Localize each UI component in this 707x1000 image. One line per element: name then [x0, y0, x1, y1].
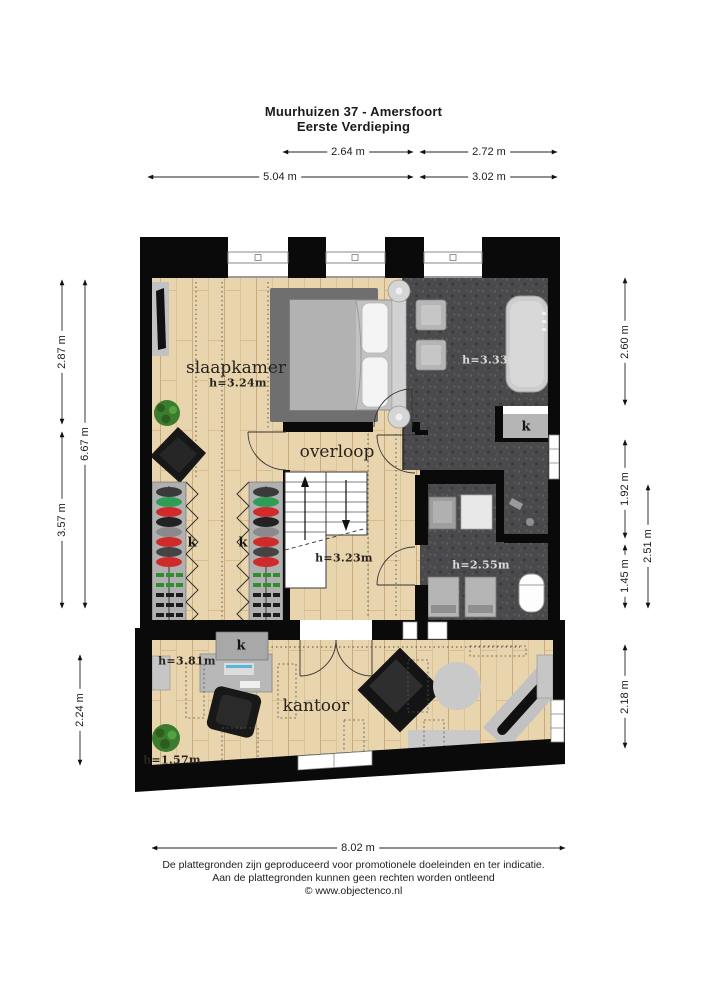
- dimension-label: 2.87 m: [56, 331, 68, 373]
- dimension-label: 2.24 m: [74, 689, 86, 731]
- room-label-overloop: overloop: [300, 442, 375, 462]
- dimension-label: 2.60 m: [619, 321, 631, 363]
- closet-label: k: [236, 639, 245, 654]
- plant-icon: [152, 724, 180, 752]
- dimension-label: 1.45 m: [619, 555, 631, 597]
- closet-label: k: [187, 536, 196, 551]
- dimension-label: 3.57 m: [56, 499, 68, 541]
- toilet-icon: [519, 574, 544, 612]
- dimension-label: 3.02 m: [468, 171, 510, 183]
- dimension-label: 5.04 m: [259, 171, 301, 183]
- ceiling-height-label: h=3.23m: [315, 552, 373, 565]
- footer-copyright: © www.objectenco.nl: [0, 885, 707, 897]
- dimension-label: 2.51 m: [642, 525, 654, 567]
- ceiling-height-label: h=3.24m: [209, 377, 267, 390]
- footer-disclaimer-1: De plattegronden zijn geproduceerd voor …: [0, 859, 707, 871]
- plant-icon: [154, 400, 180, 426]
- round-rug: [433, 662, 481, 710]
- ceiling-height-label: h=1.57m: [143, 754, 201, 767]
- ceiling-height-label: h=2.55m: [452, 559, 510, 572]
- room-label-kantoor: kantoor: [283, 696, 350, 716]
- dimension-label: 2.72 m: [468, 146, 510, 158]
- dimension-label: 2.18 m: [619, 676, 631, 718]
- dimension-label: 1.92 m: [619, 468, 631, 510]
- ceiling-height-label: h=3.33m: [462, 354, 520, 367]
- dimension-label: 2.64 m: [327, 146, 369, 158]
- closet-label: k: [238, 536, 247, 551]
- footer-disclaimer-2: Aan de plattegronden kunnen geen rechten…: [0, 872, 707, 884]
- room-label-slaapkamer: slaapkamer: [186, 358, 286, 378]
- closet-label: k: [521, 420, 530, 435]
- floorplan-page: Muurhuizen 37 - Amersfoort Eerste Verdie…: [0, 0, 707, 1000]
- dimension-label: 6.67 m: [79, 423, 91, 465]
- dimension-label: 8.02 m: [337, 842, 379, 854]
- ceiling-height-label: h=3.81m: [158, 655, 216, 668]
